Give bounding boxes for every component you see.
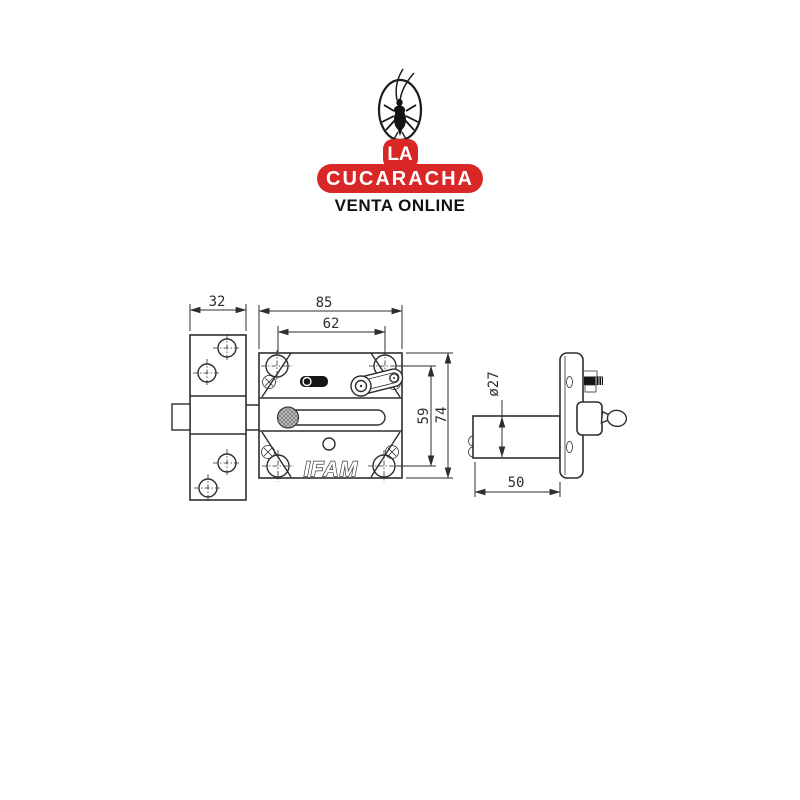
bolt-tip (172, 404, 190, 430)
bolt-link-lines (246, 405, 259, 430)
svg-text:ø27: ø27 (486, 371, 502, 396)
logo-text-la: LA (387, 145, 412, 164)
knurled-knob (278, 407, 299, 428)
svg-text:74: 74 (434, 407, 450, 424)
keeper-plate (172, 334, 259, 502)
keyhole-circle (323, 438, 335, 450)
product-image: LA CUCARACHA VENTA ONLINE (0, 0, 800, 800)
svg-text:59: 59 (416, 408, 432, 425)
logo-text-cucaracha: CUCARACHA (326, 169, 474, 189)
fixing-screw-side (583, 371, 603, 392)
technical-drawing: IFAM (0, 0, 800, 800)
ifam-brand-text: IFAM (304, 458, 358, 481)
cylinder-side (473, 416, 560, 458)
thumbturn-knob (601, 409, 627, 427)
svg-text:85: 85 (316, 295, 333, 311)
dim-cylinder-length: 50 (475, 462, 560, 497)
svg-text:32: 32 (209, 294, 226, 310)
lock-status-indicator (300, 376, 328, 387)
bolt-slide-slot (278, 407, 386, 428)
svg-text:50: 50 (508, 475, 525, 491)
keeper-plate-outline (190, 335, 246, 500)
dim-keeper-width: 32 (190, 294, 246, 331)
svg-text:62: 62 (323, 316, 340, 332)
logo-badge-la: LA (383, 139, 418, 169)
dim-hole-spacing-horizontal: 62 (278, 316, 385, 352)
thumbturn-boss (577, 402, 602, 435)
lock-body-front-view: IFAM (259, 350, 404, 482)
